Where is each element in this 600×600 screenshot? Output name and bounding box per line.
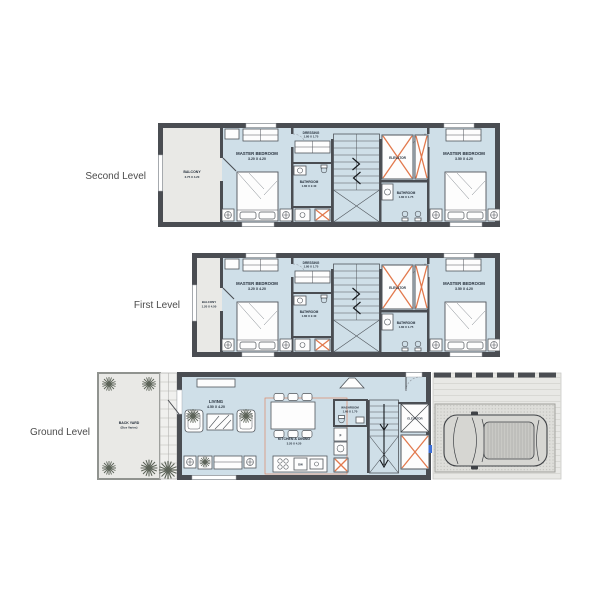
bedroom-right-dims: 3.50 X 4.20 <box>455 287 473 291</box>
first-level-plan: BALCONY 1.20 X 4.50 MASTER BEDROOM 3.20 … <box>192 253 500 357</box>
elevator: ELEVATOR <box>401 404 432 469</box>
dressing-dims: 1.80 X 1.75 <box>304 135 319 139</box>
dishwasher-label: DW <box>298 463 303 467</box>
kitchen-dims: 3.20 X 4.20 <box>287 442 302 446</box>
backyard-dims: (Size Varies) <box>120 426 137 430</box>
second-level-plan: BALCONY 2.75 X 4.20 MASTER BEDROOM 3.20 … <box>158 123 500 227</box>
side-walkway <box>159 373 177 479</box>
bedroom-right-name: MASTER BEDROOM <box>443 281 485 286</box>
car-top-view <box>444 412 547 470</box>
bathroom-left-dims: 1.80 X 2.40 <box>302 184 317 188</box>
bathroom-right-dims: 1.80 X 1.75 <box>399 195 414 199</box>
balcony-name: BALCONY <box>202 300 216 304</box>
balcony-dims: 2.75 X 4.20 <box>185 175 200 179</box>
elevator: ELEVATOR <box>382 135 428 179</box>
ground-level-label: Ground Level <box>0 427 90 438</box>
first-level-label: First Level <box>82 300 180 311</box>
back-yard: BACK YARD (Size Varies) <box>98 373 160 479</box>
second-level-label: Second Level <box>48 171 146 182</box>
elevator: ELEVATOR <box>382 265 428 309</box>
bedroom-right-name: MASTER BEDROOM <box>443 151 485 156</box>
living-name: LIVING <box>209 399 224 404</box>
kitchen-name: KITCHEN & DINING <box>278 437 311 441</box>
floorplan-sheet: Second Level First Level Ground Level BA… <box>0 0 600 600</box>
elevator-label: ELEVATOR <box>389 156 407 160</box>
utility-column: F <box>334 428 348 472</box>
bedroom-left-name: MASTER BEDROOM <box>236 281 278 286</box>
balcony-name: BALCONY <box>183 170 201 174</box>
washroom-dims: 1.60 X 1.70 <box>343 409 358 413</box>
door-marker <box>429 445 433 453</box>
elevator-label: ELEVATOR <box>389 286 407 290</box>
backyard-name: BACK YARD <box>119 421 140 425</box>
bathroom-left-dims: 1.80 X 2.40 <box>302 314 317 318</box>
bedroom-right-dims: 3.50 X 4.20 <box>455 157 473 161</box>
bedroom-left-dims: 3.20 X 4.20 <box>248 287 266 291</box>
fridge-label: F <box>340 434 342 438</box>
driveway <box>433 373 561 480</box>
bathroom-right-dims: 1.80 X 1.75 <box>399 325 414 329</box>
dressing-dims: 1.80 X 1.75 <box>304 265 319 269</box>
balcony-dims: 1.20 X 4.50 <box>202 305 217 309</box>
living-dims: 4.50 X 4.20 <box>207 405 225 409</box>
elevator-label: ELEVATOR <box>407 417 423 421</box>
bedroom-left-name: MASTER BEDROOM <box>236 151 278 156</box>
ground-level-plan: BACK YARD (Size Varies) LIVING 4.5 <box>97 372 563 480</box>
bedroom-left-dims: 3.20 X 4.20 <box>248 157 266 161</box>
